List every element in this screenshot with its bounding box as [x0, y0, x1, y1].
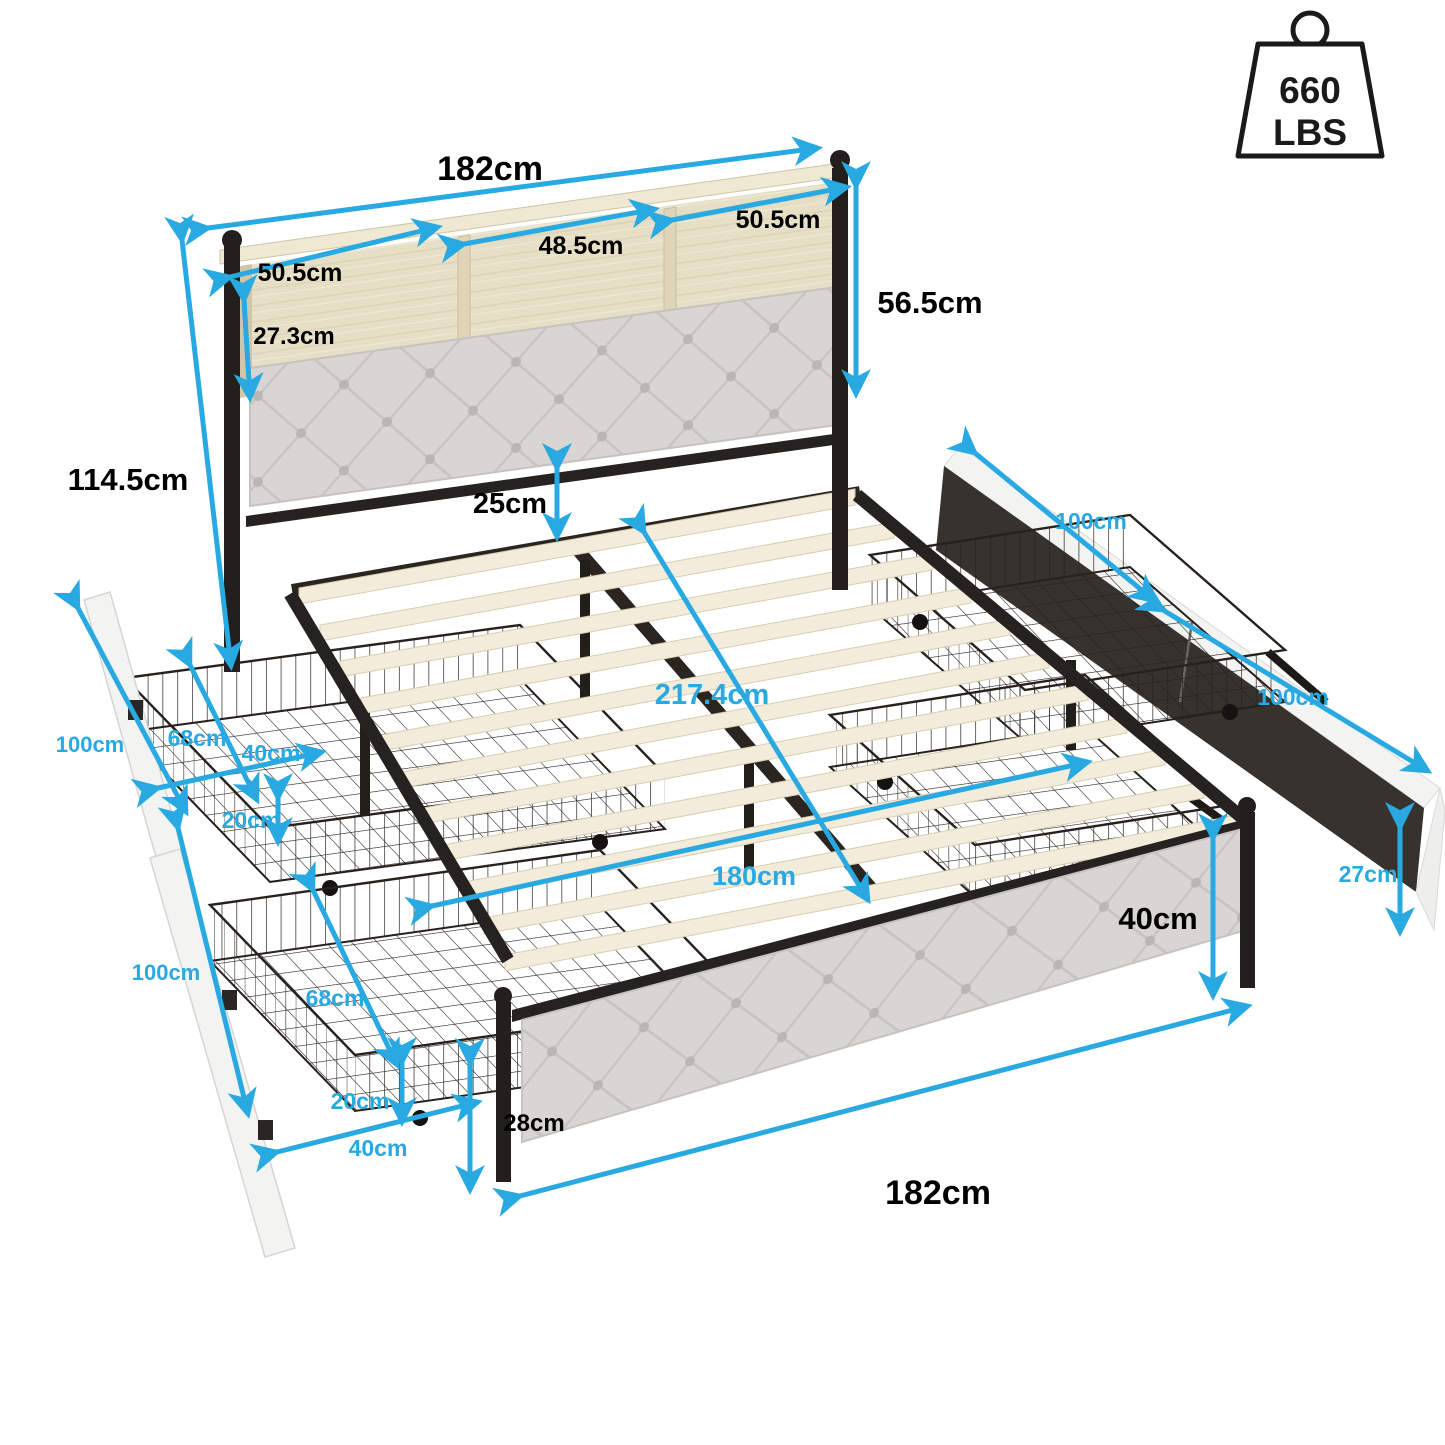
dim-shelf-left: 50.5cm — [258, 259, 343, 287]
dim-under-headboard-gap: 25cm — [473, 488, 547, 520]
dim-slat-width: 180cm — [712, 861, 796, 891]
dim-headboard-width: 182cm — [437, 150, 543, 188]
headboard-right-post — [832, 168, 848, 590]
dim-footboard-width: 182cm — [885, 1174, 991, 1212]
dim-drawer2-height: 20cm — [331, 1088, 390, 1114]
post-finial — [830, 150, 850, 170]
shelf-divider — [664, 207, 676, 325]
dim-right-drawer-far: 100cm — [1257, 684, 1329, 710]
dim-shelf-right: 50.5cm — [736, 206, 821, 234]
dim-bed-length: 217.4cm — [655, 679, 770, 711]
post-finial — [494, 987, 512, 1005]
product-dimension-diagram: 182cm 50.5cm 48.5cm 50.5cm 27.3cm 56.5cm… — [0, 0, 1445, 1445]
dim-headboard-upper-height: 56.5cm — [877, 285, 982, 320]
post-finial — [1238, 797, 1256, 815]
footboard-left-post — [496, 1002, 511, 1182]
dim-drawer-front-height: 27cm — [1339, 861, 1398, 887]
shelf-divider — [458, 235, 470, 353]
dim-drawer2-depth: 68cm — [306, 985, 365, 1011]
dim-drawer1-height: 20cm — [222, 807, 281, 833]
dim-left-drawer-upper-length: 100cm — [56, 732, 125, 757]
post-finial — [222, 230, 242, 250]
dim-right-drawer-near: 100cm — [1055, 508, 1127, 534]
footboard-right-post — [1240, 812, 1255, 988]
dim-headboard-total-height: 114.5cm — [68, 462, 189, 497]
dim-left-drawer-lower-length: 100cm — [132, 960, 201, 985]
dim-drawer1-depth: 68cm — [168, 725, 227, 751]
dim-footboard-height: 40cm — [1118, 901, 1197, 936]
dim-shelf-depth: 27.3cm — [253, 323, 334, 350]
dim-drawer1-width: 40cm — [242, 740, 301, 766]
weight-capacity-unit: LBS — [1273, 112, 1347, 153]
dim-floor-clearance: 28cm — [503, 1110, 564, 1137]
dim-shelf-center: 48.5cm — [539, 232, 624, 260]
weight-capacity-value: 660 — [1279, 70, 1341, 111]
dim-drawer2-width: 40cm — [349, 1135, 408, 1161]
bed-diagram-canvas: 182cm 50.5cm 48.5cm 50.5cm 27.3cm 56.5cm… — [0, 0, 1445, 1445]
